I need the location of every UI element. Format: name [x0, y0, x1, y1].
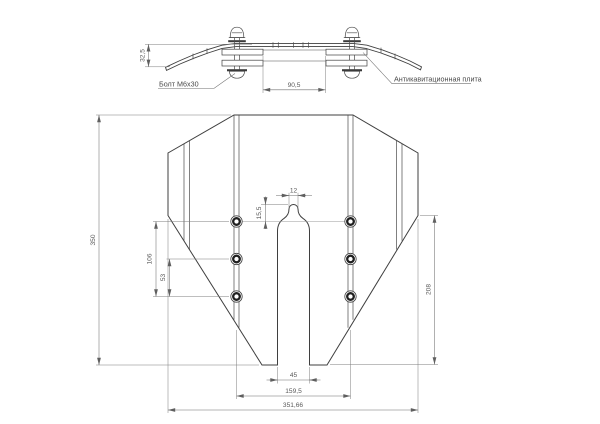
dim-overall-height-text: 350 [90, 234, 97, 245]
bolt-callout: Болт М6х30 [158, 74, 235, 89]
side-view: 32,5 90,5 Болт М6х30 Антикавитационная п… [140, 27, 482, 93]
dim-clamp-span: 90,5 [263, 56, 326, 93]
bolt-assembly-left [222, 27, 263, 78]
bolt-hole-left-top [231, 216, 242, 227]
clamp-connector-lines [263, 50, 326, 61]
bolt-hole-left-mid [231, 253, 242, 264]
front-view: 350 106 53 15,5 12 [90, 115, 438, 413]
plate-label: Антикавитационная плита [394, 75, 482, 84]
bolt-hole-right-top [345, 216, 356, 227]
dim-overall-height: 350 [90, 115, 99, 365]
plate-callout: Антикавитационная плита [363, 53, 482, 84]
dim-overall-width-text: 351,66 [283, 402, 304, 409]
bolt-hole-left-bottom [231, 291, 242, 302]
dim-bolt-columns-span: 159,5 [237, 388, 351, 396]
bolt-hole-right-mid [345, 253, 356, 264]
dim-bolt-rows-span-text: 106 [147, 253, 154, 264]
dim-clamp-span-text: 90,5 [288, 82, 301, 89]
drawing-svg: 32,5 90,5 Болт М6х30 Антикавитационная п… [0, 0, 600, 424]
dim-slot-width: 45 [267, 372, 321, 380]
bolt-hole-right-bottom [345, 291, 356, 302]
dim-tip-height-text: 32,5 [140, 49, 147, 62]
bolt-assembly-right [326, 27, 367, 78]
dim-slot-tip-offset-text: 15,5 [256, 206, 263, 219]
technical-drawing-anticavitation-plate: 32,5 90,5 Болт М6х30 Антикавитационная п… [0, 0, 600, 424]
bolt-label: Болт М6х30 [159, 79, 199, 88]
dim-overall-width: 351,66 [168, 402, 418, 410]
dim-bolt-row-pitch-text: 53 [160, 274, 167, 282]
dim-right-height-text: 208 [426, 284, 433, 295]
dim-slot-tip-width-text: 12 [290, 188, 298, 195]
dim-right-height: 208 [426, 216, 435, 365]
dim-bolt-columns-span-text: 159,5 [285, 388, 302, 395]
plate-outline [168, 115, 418, 365]
dim-bolt-rows-span: 106 [147, 222, 157, 297]
dim-slot-width-text: 45 [290, 372, 298, 379]
